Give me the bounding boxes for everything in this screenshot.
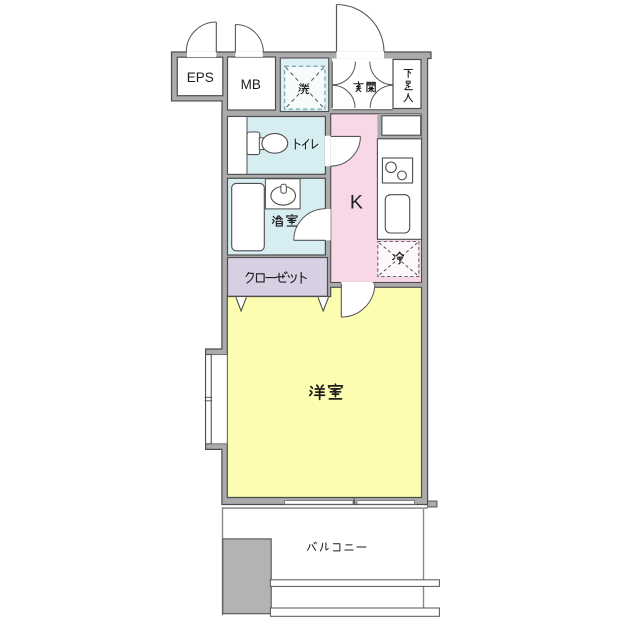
svg-text:EPS: EPS: [187, 70, 214, 85]
svg-text:MB: MB: [241, 77, 261, 92]
svg-text:K: K: [350, 191, 363, 213]
